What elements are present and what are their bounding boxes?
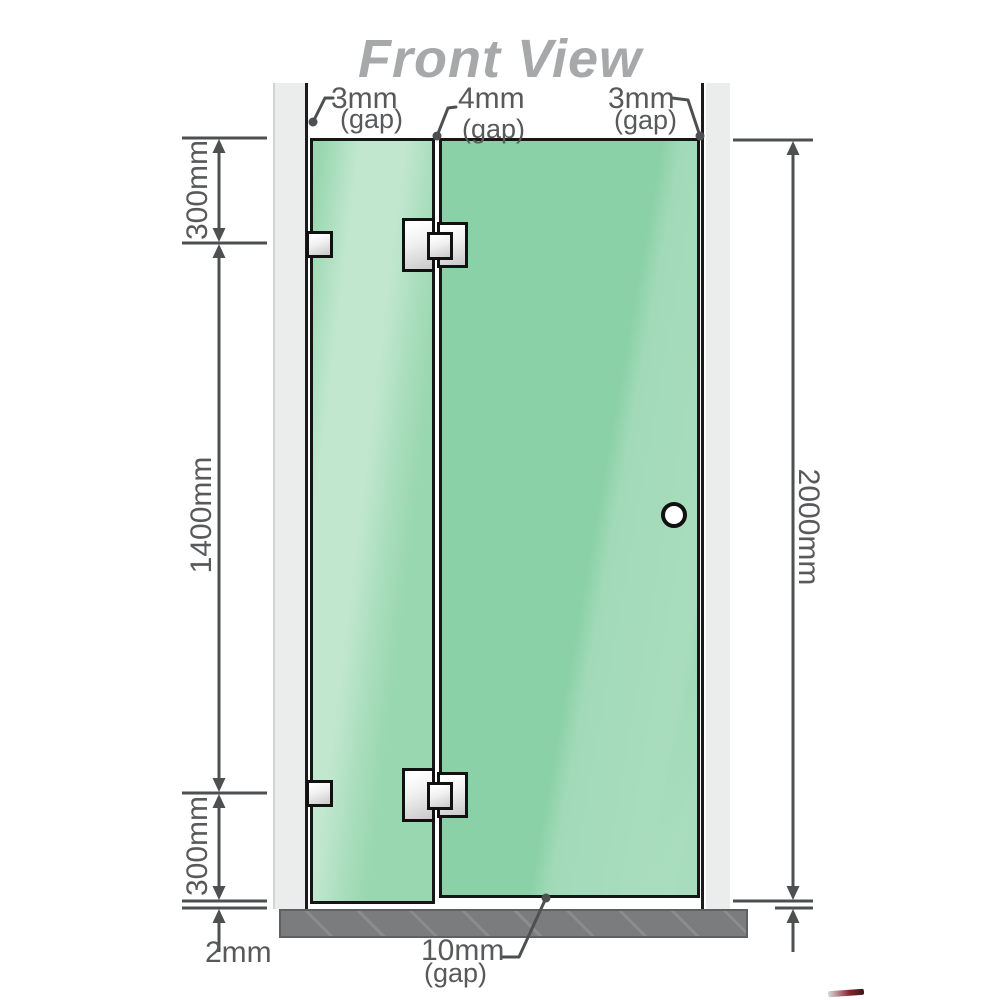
dim-left-top: 300mm (183, 140, 213, 240)
dim-right-overall: 2000mm (793, 469, 823, 586)
gap-label-right-qualifier: (gap) (614, 107, 677, 134)
floor-gap-label: 2mm (205, 938, 272, 968)
front-view-diagram: Front View (0, 0, 1000, 1000)
dim-left-bottom: 300mm (183, 796, 213, 896)
gap-label-bottom-qualifier: (gap) (424, 960, 487, 987)
gap-label-left-qualifier: (gap) (340, 106, 403, 133)
gap-label-middle-value: 4mm (458, 84, 525, 114)
dimension-lines (0, 0, 1000, 1000)
gap-label-middle-qualifier: (gap) (462, 116, 525, 143)
dim-left-middle: 1400mm (187, 457, 217, 574)
